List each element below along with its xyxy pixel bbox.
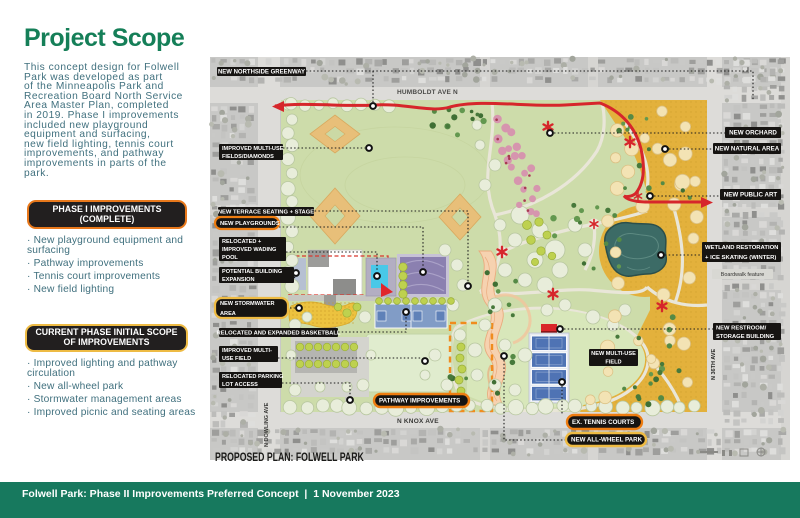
svg-text:NEW PLAYGROUNDS: NEW PLAYGROUNDS xyxy=(220,221,280,227)
svg-text:USE FIELD: USE FIELD xyxy=(222,356,251,362)
svg-text:+ ICE SKATING (WINTER): + ICE SKATING (WINTER) xyxy=(705,255,776,261)
svg-text:FIELDS/DIAMONDS: FIELDS/DIAMONDS xyxy=(222,154,274,160)
svg-text:POOL: POOL xyxy=(222,255,238,261)
svg-text:NEW NORTHSIDE GREENWAY: NEW NORTHSIDE GREENWAY xyxy=(218,70,305,76)
svg-text:HUMBOLDT AVE N: HUMBOLDT AVE N xyxy=(397,89,458,96)
svg-text:LOT ACCESS: LOT ACCESS xyxy=(222,382,258,388)
svg-text:NEW ORCHARD: NEW ORCHARD xyxy=(729,130,777,137)
svg-text:RELOCATED AND EXPANDED BASKETB: RELOCATED AND EXPANDED BASKETBALL xyxy=(217,331,341,337)
svg-text:IMPROVED MULTI-: IMPROVED MULTI- xyxy=(222,348,272,354)
svg-text:RELOCATED PARKING: RELOCATED PARKING xyxy=(222,374,283,380)
svg-text:PATHWAY IMPROVEMENTS: PATHWAY IMPROVEMENTS xyxy=(379,398,460,405)
svg-text:AREA: AREA xyxy=(220,311,236,317)
svg-text:IMPROVED WADING: IMPROVED WADING xyxy=(222,247,276,253)
svg-text:NEW ALL-WHEEL PARK: NEW ALL-WHEEL PARK xyxy=(571,437,643,444)
svg-text:NEW RESTROOM/: NEW RESTROOM/ xyxy=(716,325,767,331)
svg-text:NEW NATURAL AREA: NEW NATURAL AREA xyxy=(715,146,780,153)
svg-text:POTENTIAL BUILDING: POTENTIAL BUILDING xyxy=(222,269,282,275)
svg-text:N KNOX AVE: N KNOX AVE xyxy=(397,418,439,425)
svg-text:FIELD: FIELD xyxy=(605,360,621,366)
svg-text:EX. TENNIS COURTS: EX. TENNIS COURTS xyxy=(572,419,634,426)
svg-text:RELOCATED +: RELOCATED + xyxy=(222,239,262,245)
svg-text:NEW TERRACE SEATING + STAGE: NEW TERRACE SEATING + STAGE xyxy=(218,210,314,216)
svg-text:STORAGE BUILDING: STORAGE BUILDING xyxy=(716,334,775,340)
svg-text:NEW STORMWATER: NEW STORMWATER xyxy=(220,301,274,307)
svg-text:N 36TH AVE: N 36TH AVE xyxy=(711,348,717,380)
svg-text:IMPROVED MULTI-USE: IMPROVED MULTI-USE xyxy=(222,146,284,152)
svg-text:PROPOSED PLAN: FOLWELL PARK: PROPOSED PLAN: FOLWELL PARK xyxy=(215,452,364,465)
svg-text:WETLAND RESTORATION: WETLAND RESTORATION xyxy=(705,245,778,251)
svg-text:Boardwalk feature: Boardwalk feature xyxy=(721,272,764,278)
svg-text:NEW PUBLIC ART: NEW PUBLIC ART xyxy=(724,192,778,199)
svg-text:EXPANSION: EXPANSION xyxy=(222,277,255,283)
svg-text:N DOWLING AVE: N DOWLING AVE xyxy=(264,402,270,447)
svg-text:NEW MULTI-USE: NEW MULTI-USE xyxy=(591,351,636,357)
